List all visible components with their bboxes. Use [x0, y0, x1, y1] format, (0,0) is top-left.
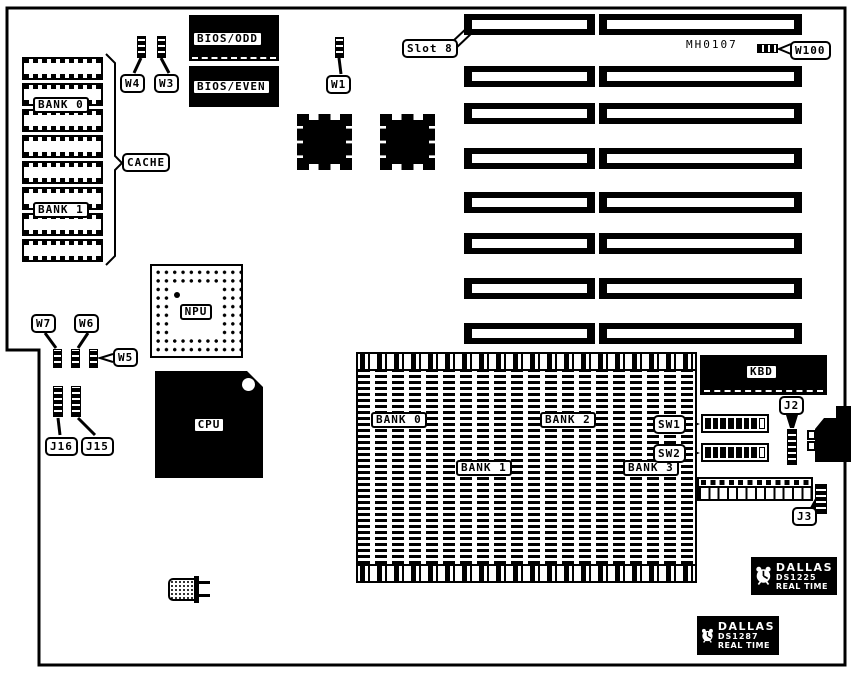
- jumper-w6: [71, 349, 80, 368]
- j3-label: J3: [792, 507, 817, 526]
- crystal-lead: [199, 581, 210, 584]
- rtc-type: REAL TIME: [718, 641, 775, 650]
- sw2-label: SW2: [653, 444, 686, 463]
- keyboard-din-connector-tab: [836, 406, 851, 419]
- w1-label: W1: [326, 75, 351, 94]
- jumper-w7: [53, 349, 62, 368]
- isa-slot-2-right: [599, 278, 802, 299]
- sw1-label: SW1: [653, 415, 686, 434]
- header-j16: [53, 386, 63, 417]
- isa-slot-3-right: [599, 233, 802, 254]
- switch-position: [736, 418, 742, 429]
- rtc-text: DALLAS DS1287 REAL TIME: [718, 621, 775, 650]
- cpu-pin1-dot: [242, 378, 255, 391]
- npu-label: NPU: [180, 304, 213, 320]
- w6-label: W6: [74, 314, 99, 333]
- cache-sram-chip-stack: [22, 57, 103, 262]
- j15-label: J15: [81, 437, 114, 456]
- cache-bank1-label: BANK 1: [33, 202, 89, 218]
- rtc-text: DALLAS DS1225 REAL TIME: [776, 562, 833, 591]
- switch-position: [759, 447, 765, 458]
- din-mount-pin: [807, 430, 816, 440]
- qfp-chip-1: [297, 114, 352, 170]
- alarm-clock-icon: [701, 623, 714, 649]
- qfp-chip-2: [380, 114, 435, 170]
- j16-label: J16: [45, 437, 78, 456]
- jumper-w1: [335, 37, 344, 58]
- power-connector: [697, 477, 813, 501]
- dram-capacitor-row-bottom: [358, 564, 695, 581]
- rtc-brand: DALLAS: [718, 621, 775, 632]
- w5-pointer: [100, 354, 113, 362]
- w5-label: W5: [113, 348, 138, 367]
- cache-label: CACHE: [122, 153, 170, 172]
- j2-arrow: [786, 415, 798, 428]
- isa-slot-7-right: [599, 66, 802, 87]
- keyboard-controller-chip: KBD: [700, 355, 827, 395]
- kbd-label: KBD: [745, 364, 778, 380]
- isa-slot-8-left: [464, 14, 595, 35]
- header-j15: [71, 386, 81, 417]
- socket-dashed-line: [192, 57, 276, 59]
- switch-position: [705, 418, 711, 429]
- jumper-w4: [137, 36, 146, 58]
- isa-slot-4-right: [599, 192, 802, 213]
- crystal-lead: [199, 594, 210, 597]
- dip-switch-sw2: [701, 443, 769, 462]
- switch-position: [736, 447, 742, 458]
- socket-dashed-line: [704, 390, 823, 392]
- board-part-number: MH0107: [686, 38, 738, 51]
- switch-position: [728, 447, 734, 458]
- cpu-label: CPU: [193, 417, 226, 433]
- bios-even-label: BIOS/EVEN: [192, 79, 271, 95]
- crystal-oscillator: [168, 578, 196, 601]
- isa-slot-2-left: [464, 278, 595, 299]
- j2-label: J2: [779, 396, 804, 415]
- switch-position: [720, 418, 726, 429]
- switch-position: [744, 447, 750, 458]
- jumper-w100: [757, 44, 778, 53]
- memory-bank2-label: BANK 2: [540, 412, 596, 428]
- memory-bank1-label: BANK 1: [456, 460, 512, 476]
- switch-position: [713, 447, 719, 458]
- slot8-label: Slot 8: [402, 39, 458, 58]
- rtc-brand: DALLAS: [776, 562, 833, 573]
- dram-capacitor-row-top: [358, 354, 695, 371]
- w3-label: W3: [154, 74, 179, 93]
- bios-odd-label: BIOS/ODD: [192, 31, 263, 47]
- motherboard-layout-diagram: Slot 8 MH0107 W100 BIOS/ODD BIOS/EVEN W4…: [0, 0, 851, 673]
- power-connector-pins: [699, 486, 811, 499]
- isa-slot-7-left: [464, 66, 595, 87]
- jumper-w5: [89, 349, 98, 368]
- switch-position: [751, 447, 757, 458]
- keyboard-din-connector: [815, 418, 851, 462]
- cache-dip-chip: [22, 57, 103, 80]
- switch-position: [713, 418, 719, 429]
- isa-slot-3-left: [464, 233, 595, 254]
- npu-socket-center: NPU: [171, 286, 221, 338]
- isa-slot-6-left: [464, 103, 595, 124]
- header-j2: [787, 429, 797, 465]
- cpu-chip: CPU: [155, 371, 263, 478]
- switch-position: [744, 418, 750, 429]
- npu-socket: NPU: [150, 264, 243, 358]
- isa-slot-5-right: [599, 148, 802, 169]
- switch-position: [751, 418, 757, 429]
- bios-odd-chip: BIOS/ODD: [189, 15, 279, 61]
- switch-position: [720, 447, 726, 458]
- cache-bank0-label: BANK 0: [33, 97, 89, 113]
- cache-dip-chip: [22, 239, 103, 262]
- rtc-model: DS1225: [776, 573, 833, 582]
- dip-switch-sw1: [701, 414, 769, 433]
- alarm-clock-icon: [755, 563, 772, 589]
- power-connector-latches: [701, 480, 809, 485]
- cache-dip-chip: [22, 161, 103, 184]
- w4-label: W4: [120, 74, 145, 93]
- isa-slot-1-left: [464, 323, 595, 344]
- switch-position: [705, 447, 711, 458]
- rtc-model: DS1287: [718, 632, 775, 641]
- bios-even-chip: BIOS/EVEN: [189, 66, 279, 107]
- isa-slot-4-left: [464, 192, 595, 213]
- isa-slot-8-right: [599, 14, 802, 35]
- isa-slot-5-left: [464, 148, 595, 169]
- pin1-dot: [174, 292, 180, 298]
- rtc-type: REAL TIME: [776, 582, 833, 591]
- isa-slot-1-right: [599, 323, 802, 344]
- switch-position: [728, 418, 734, 429]
- w100-label: W100: [790, 41, 831, 60]
- cache-dip-chip: [22, 135, 103, 158]
- jumper-w3: [157, 36, 166, 58]
- din-mount-pin: [807, 441, 816, 451]
- w7-label: W7: [31, 314, 56, 333]
- header-j3: [815, 484, 827, 514]
- dallas-ds1287-chip: DALLAS DS1287 REAL TIME: [697, 616, 779, 655]
- isa-slot-6-right: [599, 103, 802, 124]
- dallas-ds1225-chip: DALLAS DS1225 REAL TIME: [751, 557, 837, 595]
- switch-position: [759, 418, 765, 429]
- memory-bank0-label: BANK 0: [371, 412, 427, 428]
